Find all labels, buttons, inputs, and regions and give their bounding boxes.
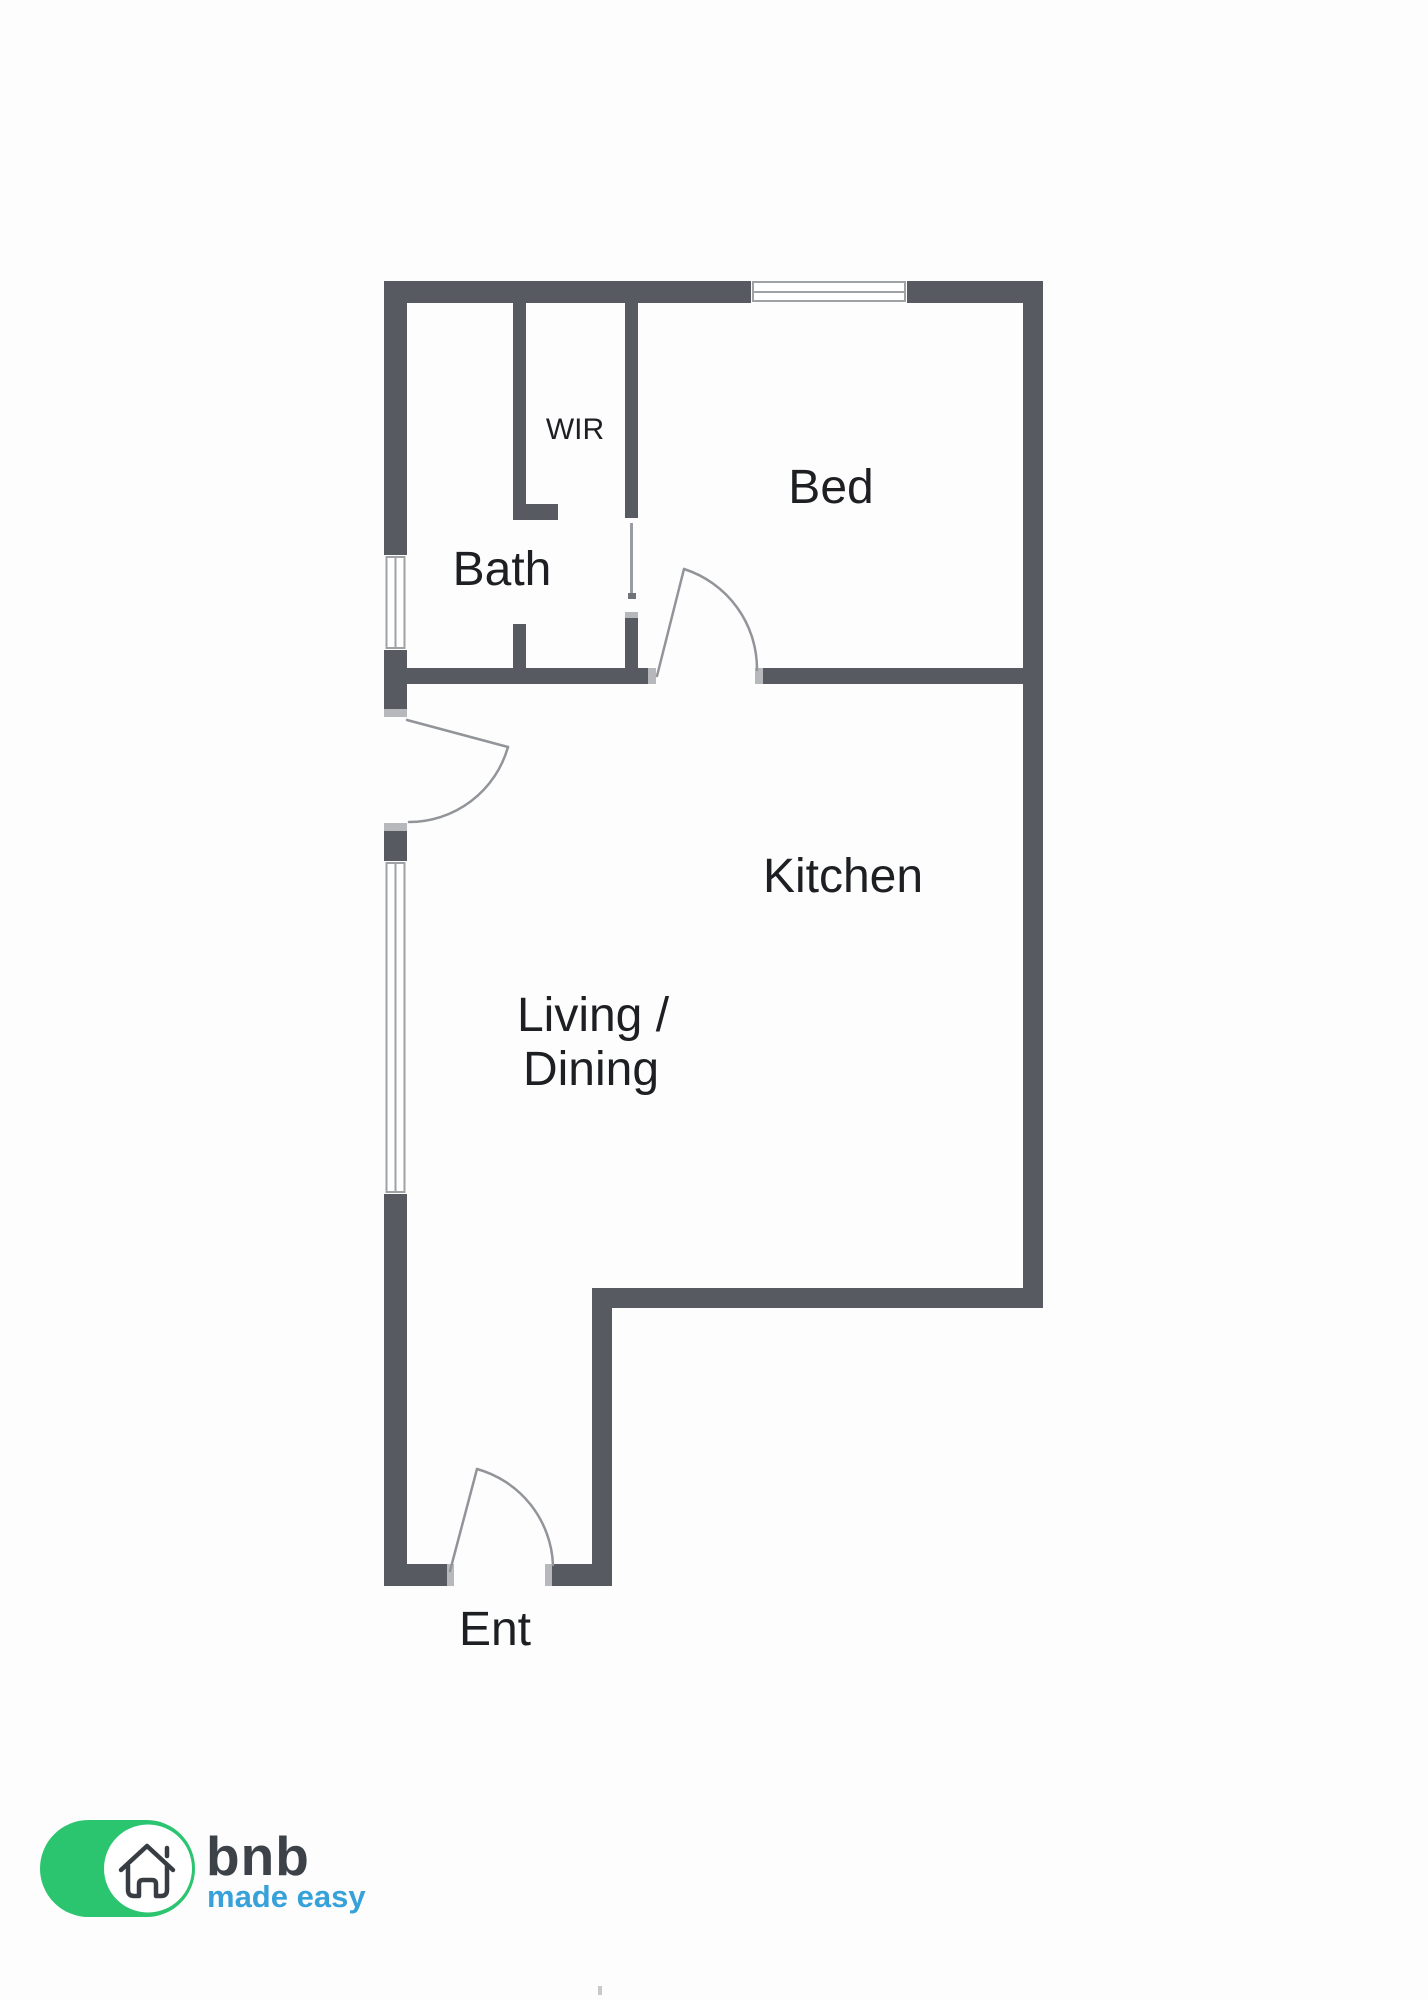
window-left-lower <box>387 863 405 1192</box>
door-bed <box>657 569 757 676</box>
room-label-kitchen: Kitchen <box>763 850 923 903</box>
wall-step-horizontal <box>592 1288 1043 1308</box>
door-living-terrace <box>407 720 508 822</box>
room-label-bath: Bath <box>453 543 552 596</box>
room-label-living-line1: Living / <box>517 989 670 1042</box>
room-label-wir: WIR <box>546 413 604 446</box>
door-entry-arc <box>477 1469 553 1565</box>
room-label-living-line2: Dining <box>523 1043 659 1096</box>
jamb-wir-right-stub-cap <box>625 612 638 618</box>
opening-left-door <box>384 717 407 823</box>
room-label-entry: Ent <box>459 1603 531 1656</box>
door-living-leaf <box>407 720 508 747</box>
door-living-arc <box>409 747 508 822</box>
wall-wir-left <box>513 303 526 520</box>
wall-top <box>384 281 1043 303</box>
wall-wir-right <box>625 303 638 518</box>
opening-entry-door <box>447 1562 552 1588</box>
jamb-living-door-bottom <box>384 823 407 831</box>
floor-plan-page: WIR Bed Bath Kitchen Living / Dining Ent… <box>0 0 1428 2000</box>
room-label-bed: Bed <box>788 461 873 514</box>
wall-right <box>1023 281 1043 1308</box>
logo: bnb made easy <box>40 1820 366 1917</box>
window-left-upper <box>387 557 405 648</box>
wall-wir-right-stub <box>625 612 638 684</box>
room-labels: WIR Bed Bath Kitchen Living / Dining Ent <box>453 413 923 1656</box>
door-bed-arc <box>684 569 757 670</box>
logo-brand-text: bnb <box>206 1825 310 1887</box>
floor-plan: WIR Bed Bath Kitchen Living / Dining Ent… <box>0 0 1428 2000</box>
interior-walls <box>407 303 1023 684</box>
door-bed-leaf <box>657 569 684 676</box>
wall-bath-bottom-left <box>407 668 655 684</box>
door-entry-leaf <box>450 1469 477 1571</box>
wall-wir-left-stub <box>513 624 526 684</box>
jamb-living-door-top <box>384 709 407 717</box>
exterior-walls <box>384 281 1043 1586</box>
logo-white-circle <box>104 1825 192 1913</box>
sliding-door-end-cap <box>628 593 636 599</box>
wall-wir-left-foot <box>513 504 558 520</box>
door-jamb-caps <box>384 612 763 1586</box>
wall-bed-bottom-right <box>755 668 1023 684</box>
jamb-bed-door-left <box>648 668 656 684</box>
window-top <box>753 282 905 301</box>
wall-step-vertical <box>592 1288 612 1586</box>
sliding-door-line <box>630 523 633 598</box>
door-entry <box>450 1469 553 1571</box>
bottom-edge-artifact <box>598 1986 602 1995</box>
logo-tagline-text: made easy <box>207 1879 366 1914</box>
sliding-door-bath <box>628 523 636 599</box>
jamb-entry-door-right <box>545 1564 552 1586</box>
